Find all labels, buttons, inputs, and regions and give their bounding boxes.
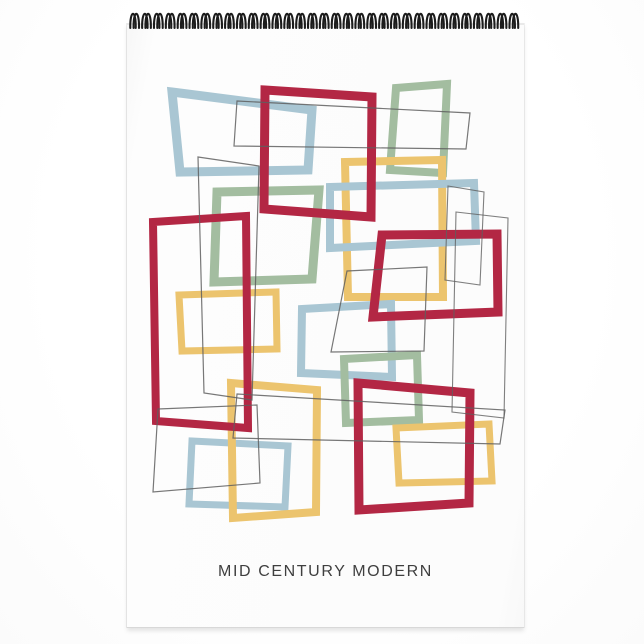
page-title: MID CENTURY MODERN — [127, 563, 524, 581]
calendar-page: MID CENTURY MODERN — [127, 23, 524, 628]
page-top-edge — [127, 23, 524, 25]
